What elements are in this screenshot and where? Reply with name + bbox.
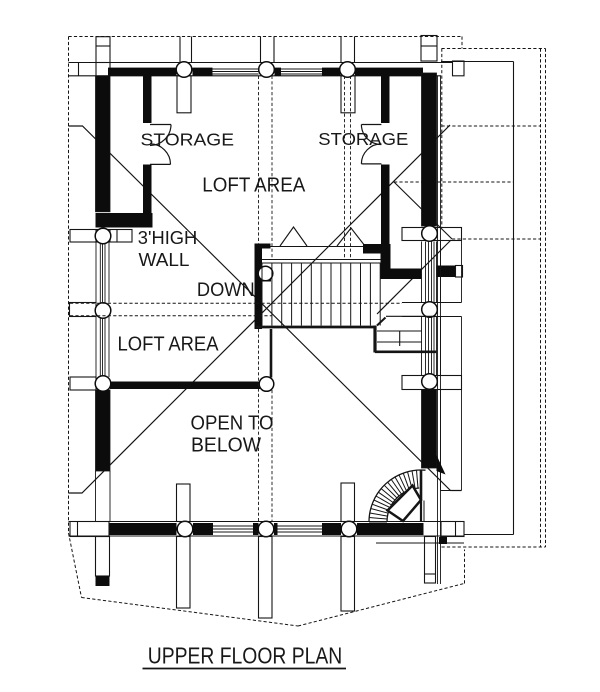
svg-text:LOFT AREA: LOFT AREA bbox=[118, 334, 220, 356]
svg-text:LOFT AREA: LOFT AREA bbox=[202, 175, 306, 197]
svg-text:BELOW: BELOW bbox=[191, 434, 262, 457]
svg-text:DOWN: DOWN bbox=[197, 280, 255, 301]
svg-text:3'HIGH: 3'HIGH bbox=[138, 227, 198, 248]
svg-text:UPPER FLOOR PLAN: UPPER FLOOR PLAN bbox=[148, 643, 343, 669]
svg-text:STORAGE: STORAGE bbox=[318, 129, 408, 149]
svg-text:OPEN TO: OPEN TO bbox=[191, 412, 274, 435]
svg-text:WALL: WALL bbox=[139, 249, 190, 270]
svg-text:STORAGE: STORAGE bbox=[141, 130, 235, 150]
